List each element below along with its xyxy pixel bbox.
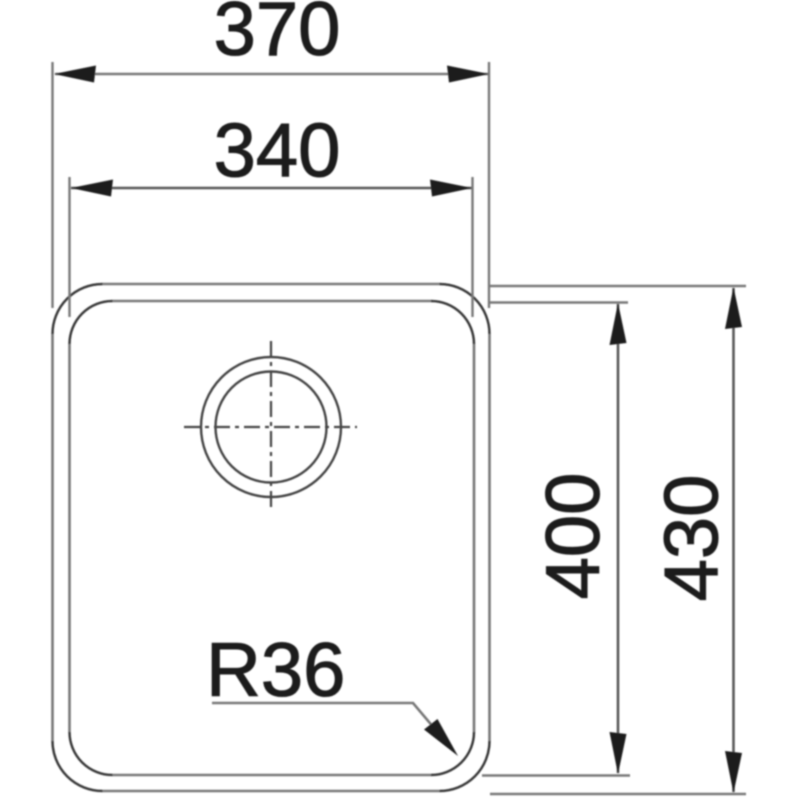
svg-text:R36: R36 xyxy=(206,628,345,713)
svg-text:400: 400 xyxy=(531,473,616,600)
svg-text:430: 430 xyxy=(650,475,735,602)
svg-text:370: 370 xyxy=(214,0,341,72)
svg-text:340: 340 xyxy=(214,109,341,194)
